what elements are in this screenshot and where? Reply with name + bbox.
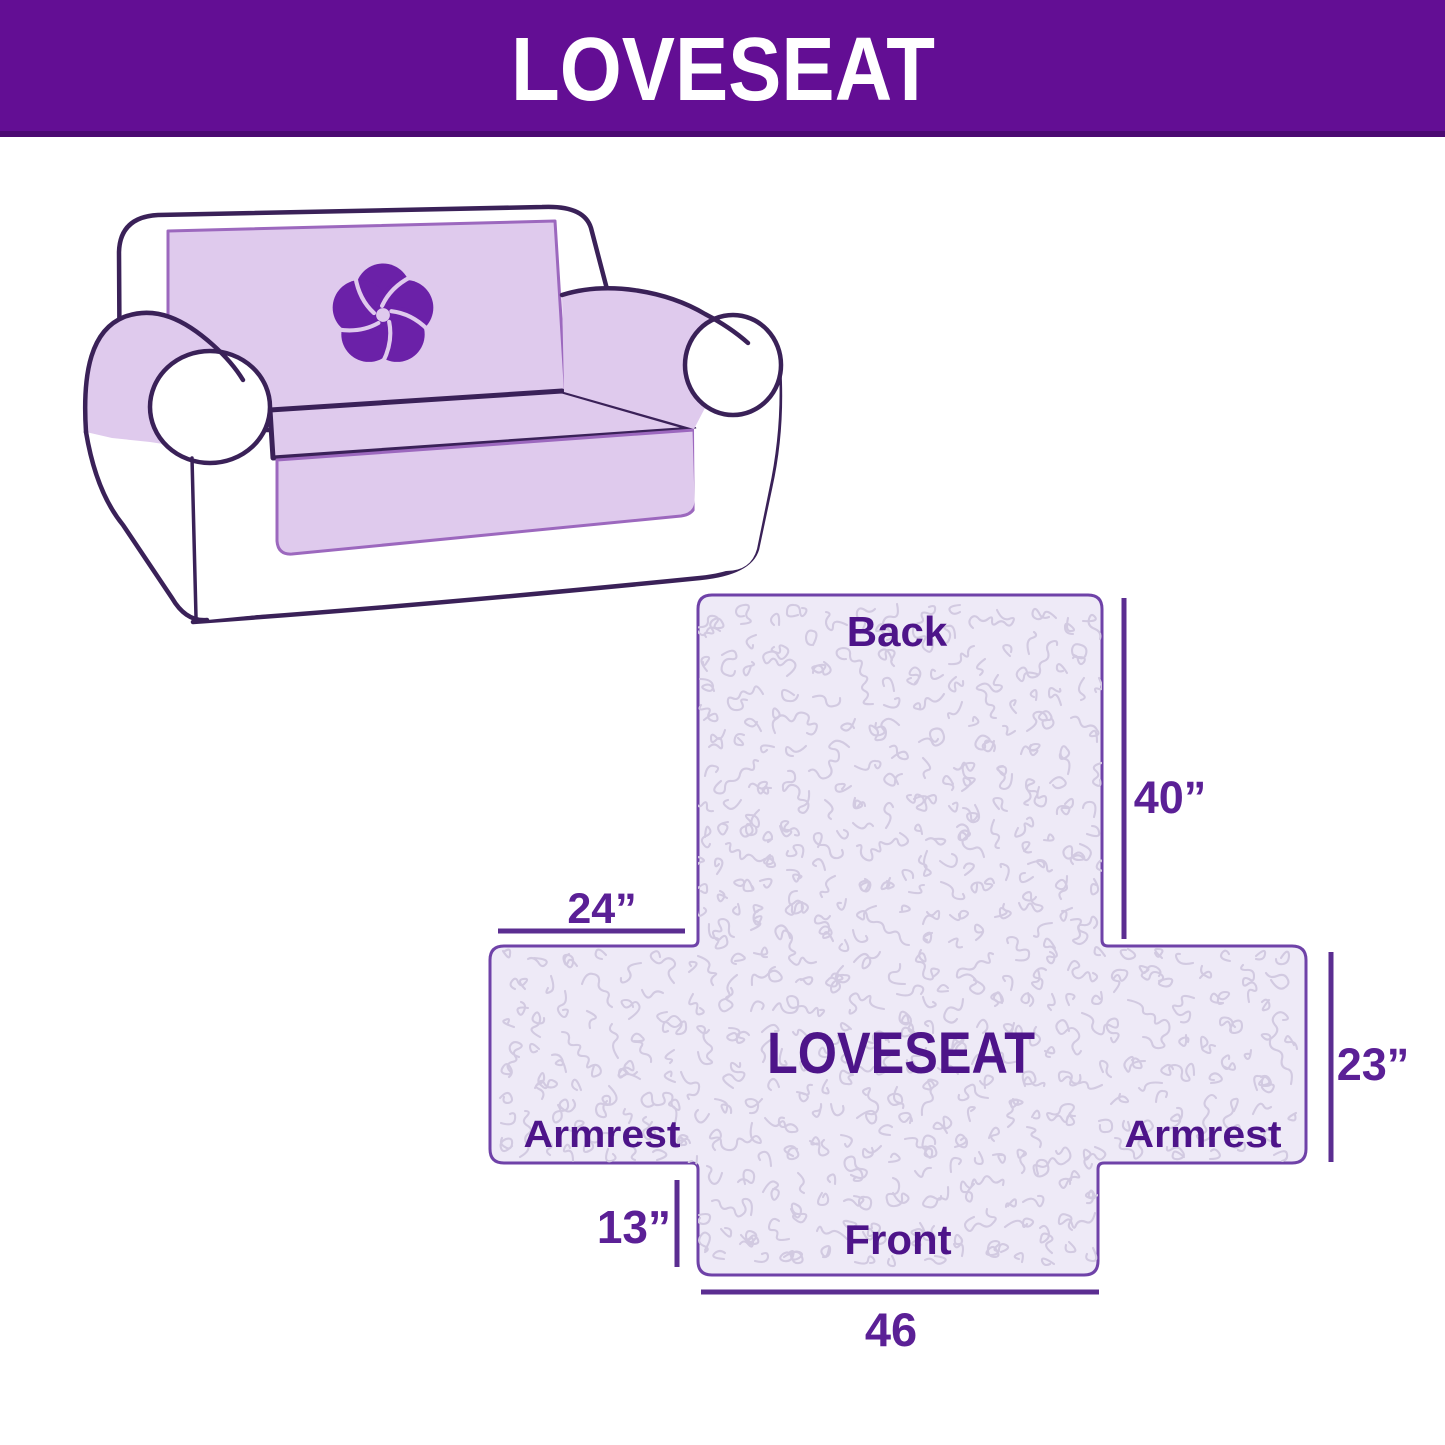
svg-text:Armrest: Armrest: [524, 1114, 681, 1156]
svg-text:23”: 23”: [1337, 1039, 1410, 1090]
svg-text:Armrest: Armrest: [1125, 1114, 1282, 1156]
svg-text:Front: Front: [844, 1216, 951, 1263]
svg-text:40”: 40”: [1134, 772, 1207, 823]
svg-text:Back: Back: [847, 608, 948, 655]
svg-text:LOVESEAT: LOVESEAT: [511, 20, 935, 120]
svg-text:LOVESEAT: LOVESEAT: [767, 1021, 1035, 1086]
svg-text:46: 46: [865, 1303, 917, 1356]
svg-text:13”: 13”: [597, 1201, 671, 1253]
svg-text:24”: 24”: [567, 885, 636, 933]
